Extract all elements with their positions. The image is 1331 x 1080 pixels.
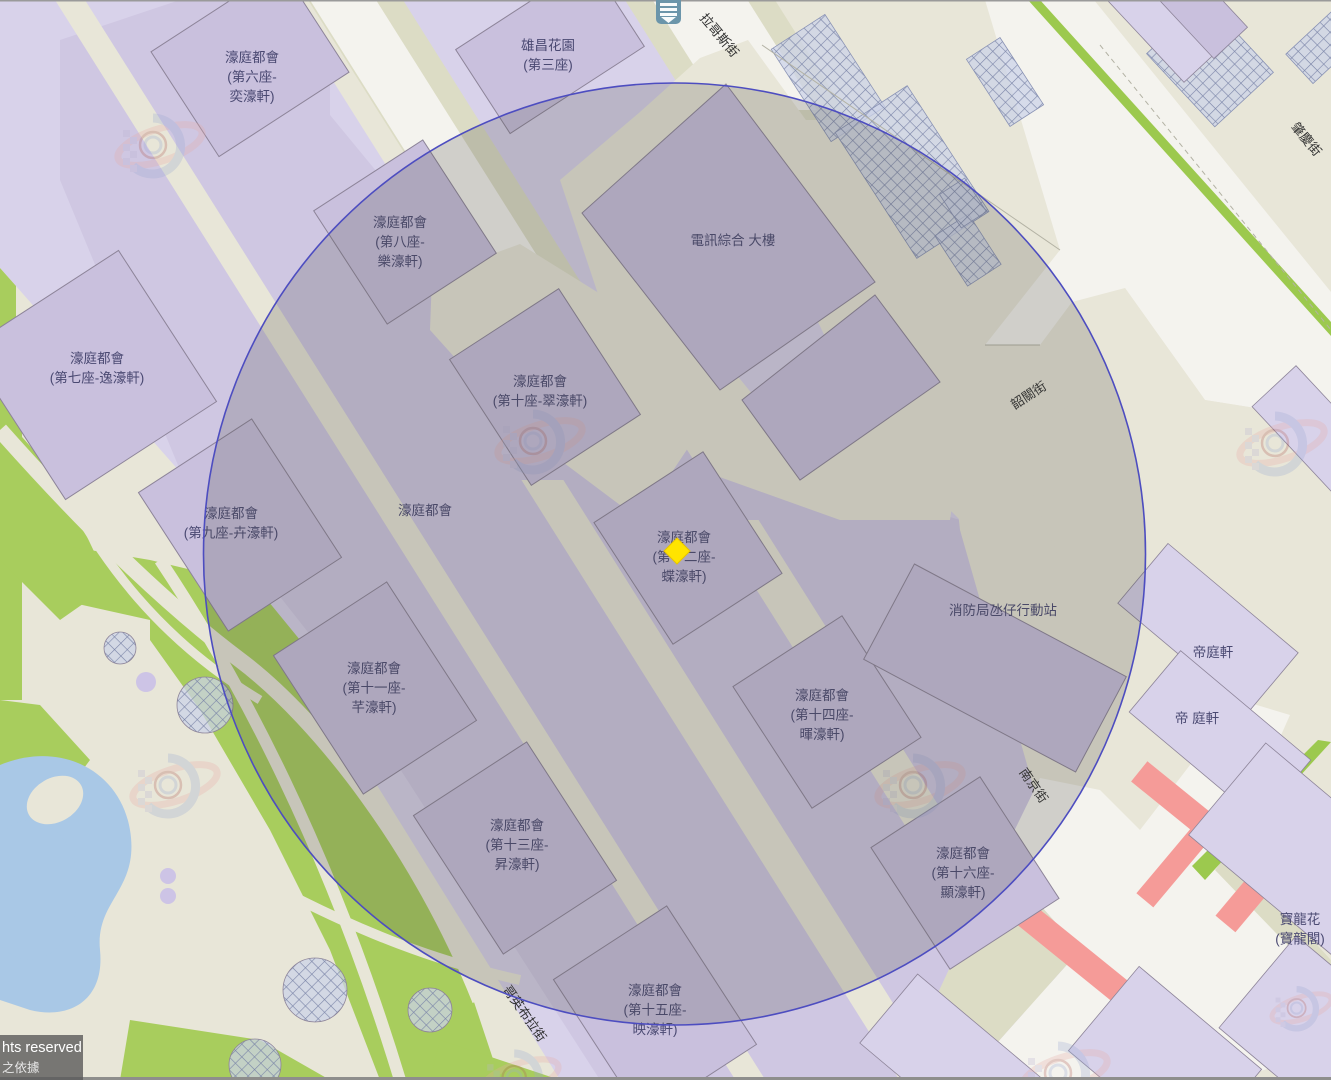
svg-text:hts reserved: hts reserved [2,1040,82,1056]
svg-text:帝庭軒: 帝庭軒 [1193,644,1234,660]
svg-text:帝 庭軒: 帝 庭軒 [1175,710,1220,726]
svg-text:濠庭都會(第六座-奕濠軒): 濠庭都會(第六座-奕濠軒) [225,49,279,104]
svg-text:之依據: 之依據 [2,1060,40,1075]
